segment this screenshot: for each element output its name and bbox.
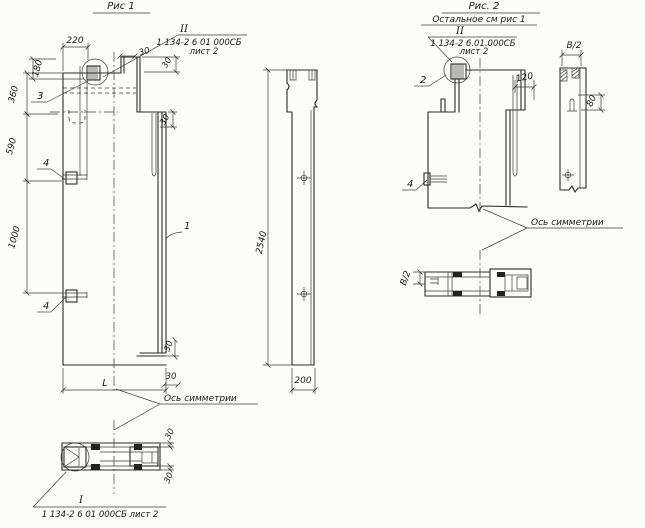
hatched-tab-left <box>560 70 567 81</box>
fig1-axis-label: Ось симметрии <box>114 389 258 430</box>
dim-30-bottom-v: 30 <box>163 340 176 354</box>
fig1-section-view: 30 30 I 1 134-2 6 01 000СБ лист 2 <box>33 420 177 520</box>
dim-30-top: 30 <box>138 46 151 58</box>
fig2-section-view: В/2 <box>399 250 531 314</box>
clip-section <box>91 444 100 450</box>
clip-section <box>497 272 505 277</box>
fig2-axis-label: Ось симметрии <box>482 209 623 250</box>
fig2-axis-text: Ось симметрии <box>531 218 604 228</box>
dim-220: 220 <box>66 36 83 46</box>
part-label-4: 4 <box>407 179 413 190</box>
dim-2540: 2540 <box>255 230 270 255</box>
anchor-rod-hook <box>152 113 156 176</box>
fig1-side-view: 2540 200 <box>255 70 317 394</box>
break-line <box>560 186 586 192</box>
dim-200: 200 <box>294 376 311 386</box>
dim-360: 360 <box>7 85 21 104</box>
hole-upper <box>297 171 311 185</box>
dim-B2-section: В/2 <box>399 269 414 287</box>
break-line <box>428 204 527 211</box>
dim-1000: 1000 <box>7 225 23 250</box>
part-label-3: 3 <box>37 91 43 102</box>
hole-lower <box>297 287 311 301</box>
figure-1: Рис 1 II 1 134-2 6 01 000СБ лист 2 <box>5 1 258 430</box>
fig2-note: Остальное см рис 1 <box>432 15 525 25</box>
fig2-callout-II: II 1 134-2 6.01.000СБ лист 2 <box>428 26 517 62</box>
fig1-callout-sheet: лист 2 <box>189 47 219 57</box>
clip-section <box>91 464 100 470</box>
fig1-axis-text: Ось симметрии <box>164 394 237 404</box>
section-channel <box>490 269 531 297</box>
clip-section <box>497 291 505 296</box>
dim-30-step: 30 <box>160 56 174 70</box>
clip-marks <box>430 277 438 285</box>
drawing-sheet: Рис 1 II 1 134-2 6 01 000СБ лист 2 <box>0 0 645 528</box>
anchor-strip <box>80 66 87 176</box>
dim-30-bottom-h: 30 <box>166 372 177 382</box>
fig1-title: Рис 1 <box>107 1 135 12</box>
dim-30-mid: 30 <box>158 113 172 127</box>
edge-notches <box>287 83 317 107</box>
part-label-2: 2 <box>420 75 426 86</box>
clamp-hatch <box>453 64 463 79</box>
dim-30-section-top: 30 <box>163 427 177 441</box>
fig1-front-view <box>50 52 166 392</box>
hatched-tab-right <box>572 68 579 78</box>
clip-section <box>453 272 462 277</box>
fig2-title: Рис. 2 <box>469 1 500 12</box>
hidden-edge <box>63 88 136 93</box>
fig2-front-view <box>424 57 527 212</box>
fig1-dimensions: 220 180 360 590 1000 30 30 30 30 30 <box>5 36 180 394</box>
fig2-callout-numeral: II <box>455 26 465 37</box>
guide-bracket-lower <box>62 290 87 302</box>
section-doc: 1 134-2 6 01 000СБ лист 2 <box>42 510 159 520</box>
hole <box>562 169 574 181</box>
clip-section <box>134 464 142 470</box>
part-label-4-upper: 4 <box>43 158 49 169</box>
guide-bracket-upper <box>62 172 87 184</box>
slot <box>567 99 577 111</box>
figure-2: Рис. 2 Остальное см рис 1 II 1 134-2 6.0… <box>402 1 623 250</box>
fig2-side-view: В/2 80 <box>560 41 605 192</box>
section-numeral: I <box>78 495 84 506</box>
fig2-callout-sheet: лист 2 <box>459 47 489 57</box>
dim-L: L <box>102 378 108 389</box>
part-label-1: 1 <box>184 221 190 232</box>
fig1-callout-II: II 1 134-2 6 01 000СБ лист 2 <box>103 24 247 77</box>
clip-section <box>453 291 462 296</box>
part-label-4-lower: 4 <box>43 301 49 312</box>
fig1-callout-numeral: II <box>179 24 189 35</box>
dim-80: 80 <box>585 94 599 109</box>
dim-120: 120 <box>515 72 534 85</box>
fig1-section-callout: I 1 134-2 6 01 000СБ лист 2 <box>33 472 166 520</box>
dim-30-section-bottom: 30 <box>162 471 176 485</box>
dim-590: 590 <box>5 137 19 156</box>
technical-drawing: Рис 1 II 1 134-2 6 01 000СБ лист 2 <box>0 0 645 528</box>
section-end-block <box>64 447 86 467</box>
dim-B2: В/2 <box>567 41 582 51</box>
